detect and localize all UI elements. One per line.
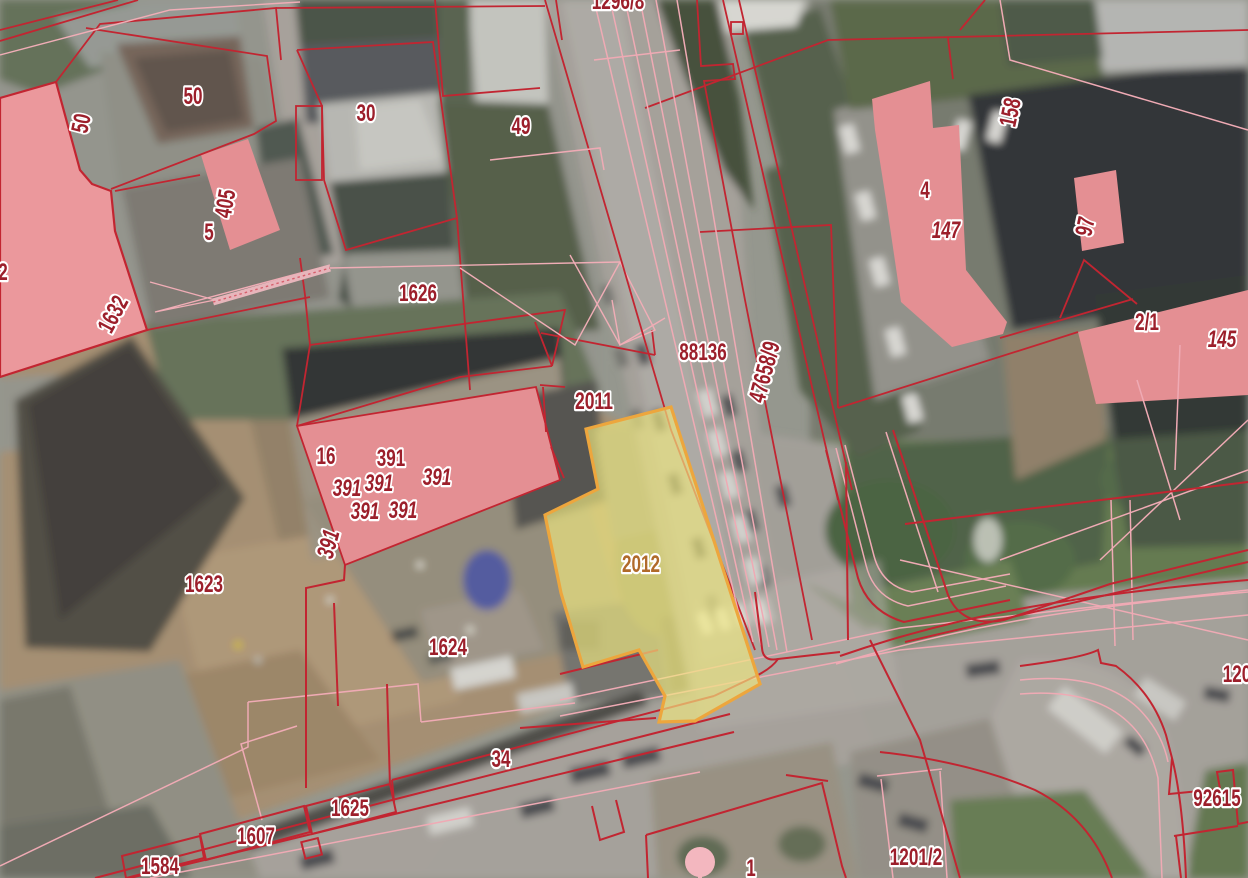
svg-text:1623: 1623 <box>185 571 223 598</box>
svg-text:88136: 88136 <box>679 339 727 366</box>
svg-text:2: 2 <box>0 259 8 286</box>
svg-text:391: 391 <box>389 497 418 524</box>
svg-text:4: 4 <box>920 177 930 204</box>
svg-text:405: 405 <box>210 187 242 220</box>
svg-text:1: 1 <box>746 855 756 878</box>
svg-text:92615: 92615 <box>1193 785 1241 812</box>
svg-text:391: 391 <box>351 498 380 525</box>
svg-text:1626: 1626 <box>399 280 437 307</box>
svg-text:120: 120 <box>1223 661 1248 688</box>
svg-text:34: 34 <box>492 746 511 773</box>
svg-text:50: 50 <box>184 83 203 110</box>
svg-text:1625: 1625 <box>331 795 369 822</box>
svg-text:1607: 1607 <box>237 823 275 850</box>
svg-text:147: 147 <box>932 217 962 244</box>
svg-text:1201/2: 1201/2 <box>890 844 943 871</box>
svg-text:16: 16 <box>317 443 336 470</box>
svg-text:391: 391 <box>377 445 406 472</box>
svg-text:5: 5 <box>204 219 214 246</box>
svg-text:391: 391 <box>365 470 394 497</box>
svg-text:1584: 1584 <box>141 853 179 878</box>
svg-text:49: 49 <box>512 113 531 140</box>
svg-text:2/1: 2/1 <box>1135 309 1159 336</box>
svg-text:145: 145 <box>1208 326 1237 353</box>
svg-text:30: 30 <box>357 100 376 127</box>
svg-text:391: 391 <box>423 464 452 491</box>
svg-text:1296/8: 1296/8 <box>592 0 645 15</box>
svg-text:1624: 1624 <box>429 634 467 661</box>
svg-text:2012: 2012 <box>622 551 660 578</box>
svg-text:2011: 2011 <box>575 388 613 415</box>
